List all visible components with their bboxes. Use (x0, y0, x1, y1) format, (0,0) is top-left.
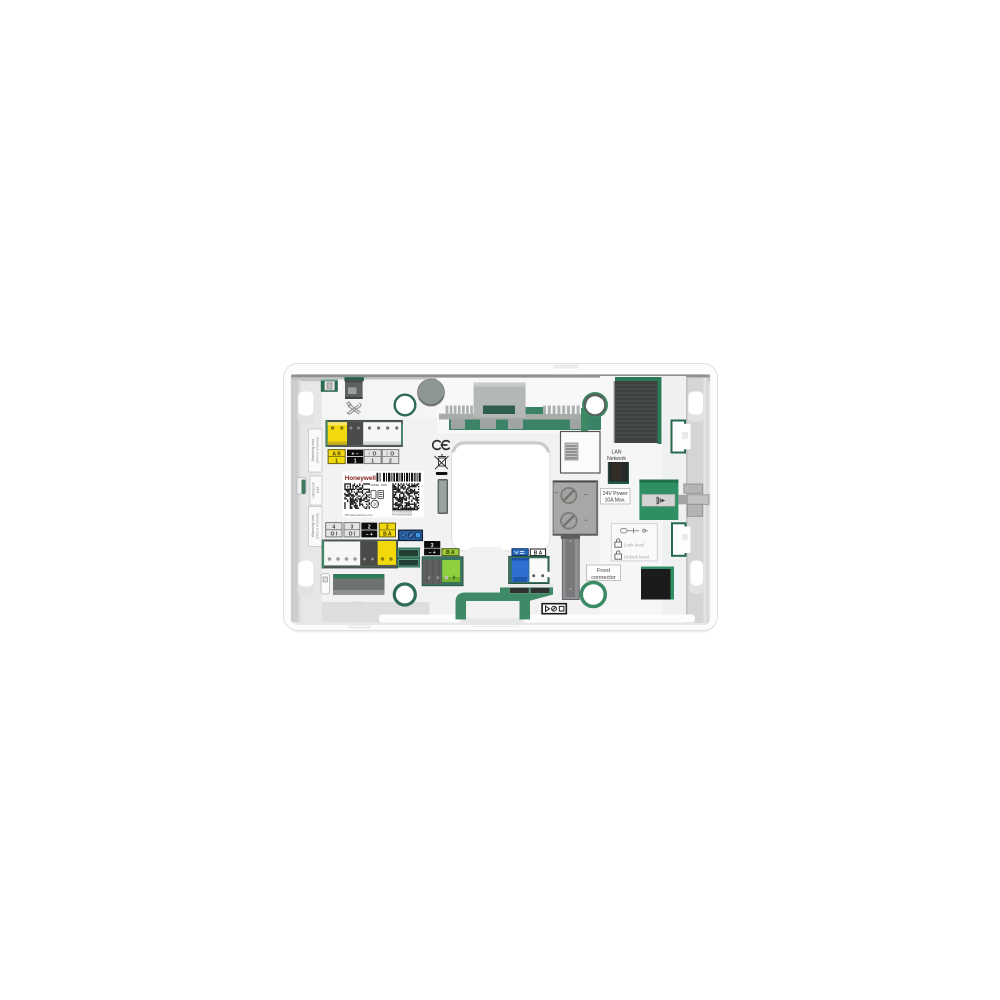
svg-text:3: 3 (351, 525, 354, 531)
svg-text:O: O (373, 451, 377, 457)
svg-text:A R: A R (332, 451, 341, 457)
svg-text:P/N www.twhome.com: P/N www.twhome.com (345, 513, 374, 517)
svg-text:Front: Front (597, 568, 611, 574)
svg-text:Network: Network (607, 456, 626, 462)
svg-text:B A: B A (446, 550, 455, 556)
svg-text:– +: – + (429, 550, 436, 556)
svg-text:B A: B A (383, 532, 392, 538)
svg-text:MODEL: 9000: MODEL: 9000 (371, 483, 388, 487)
svg-text:Warranty void: Warranty void (311, 515, 315, 538)
svg-text:4: 4 (332, 525, 335, 531)
svg-text:2: 2 (368, 525, 371, 531)
svg-text:LAN: LAN (611, 450, 621, 456)
svg-text:Unlock level: Unlock level (624, 555, 649, 560)
svg-text:Warranty void: Warranty void (311, 439, 315, 462)
svg-text:3: 3 (431, 543, 434, 549)
svg-text:PN 00000000000: PN 00000000000 (392, 513, 413, 517)
svg-text:B A: B A (534, 551, 543, 557)
svg-text:connector: connector (591, 575, 616, 581)
svg-text:(if foil is removed): (if foil is removed) (315, 513, 319, 540)
svg-text:2: 2 (389, 458, 392, 464)
svg-text:(if foil is removed): (if foil is removed) (315, 437, 319, 464)
svg-text:uit/mount: uit/mount (312, 482, 316, 497)
svg-text:O: O (390, 451, 394, 457)
svg-text:10A Max.: 10A Max. (605, 498, 626, 504)
svg-text:– +: – + (366, 532, 373, 538)
svg-text:X49: X49 (316, 487, 320, 494)
svg-text:+ –: + – (352, 451, 359, 457)
svg-text:10: 10 (373, 502, 378, 507)
svg-text:1: 1 (371, 458, 374, 464)
svg-text:1: 1 (354, 458, 357, 464)
svg-text:Lock level: Lock level (624, 543, 645, 548)
svg-text:2: 2 (386, 525, 389, 531)
svg-text:O I: O I (349, 532, 356, 538)
svg-text:Honeywell: Honeywell (345, 475, 376, 482)
svg-text:O I: O I (330, 532, 337, 538)
svg-text:24V Power: 24V Power (603, 491, 628, 497)
svg-text:1: 1 (335, 458, 338, 464)
